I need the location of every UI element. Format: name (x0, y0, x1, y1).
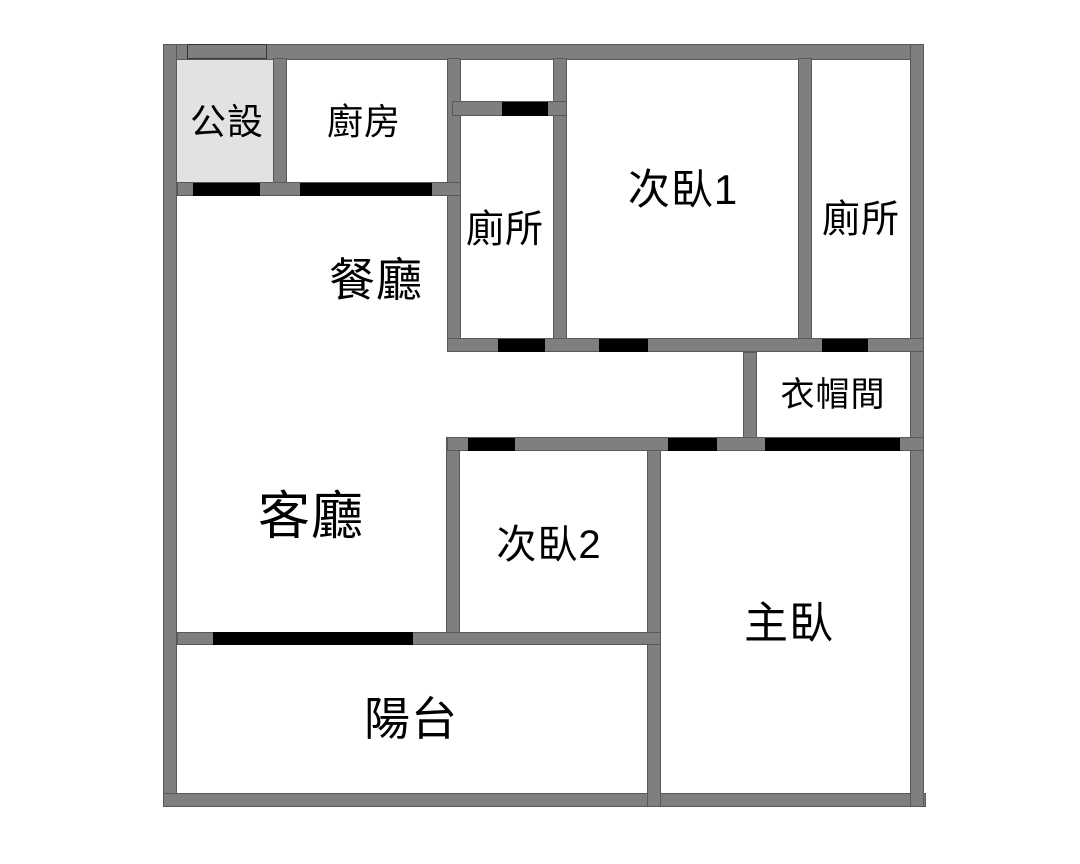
room-label-toilet-upper-left: 廁所 (466, 211, 544, 249)
wall-segment-wall-master-left (647, 437, 661, 807)
wall-segment-outer-left (163, 44, 177, 807)
room-label-living: 客廳 (258, 491, 364, 543)
wall-segment-partition-public-kitchen (273, 58, 287, 196)
floor-plan: 公設廚房廁所次臥1廁所餐廳衣帽間客廳次臥2主臥陽台 (0, 0, 1080, 864)
wall-segment-wall-bedroom1-right (798, 58, 812, 352)
door-bedroom1 (599, 339, 648, 352)
door-toilet-left (498, 339, 545, 352)
wall-segment-outer-right (910, 44, 924, 807)
room-label-toilet-upper-right: 廁所 (822, 201, 900, 239)
door-toilet-left-top (502, 102, 548, 116)
room-label-closet: 衣帽間 (781, 378, 886, 412)
door-master (668, 438, 717, 451)
room-label-master: 主臥 (744, 602, 834, 646)
room-label-bedroom-1: 次臥1 (628, 169, 738, 211)
door-balcony (213, 632, 413, 645)
wall-segment-outer-bottom (163, 793, 926, 807)
door-kitchen (300, 183, 432, 196)
door-bedroom2 (468, 438, 515, 451)
room-label-public: 公設 (190, 104, 264, 140)
door-toilet-right (822, 339, 868, 352)
wall-segment-wall-bedroom2-left (446, 437, 460, 645)
door-public (193, 183, 260, 196)
door-closet (765, 438, 900, 451)
room-label-kitchen: 廚房 (327, 104, 401, 140)
room-label-dining: 餐廳 (329, 257, 423, 303)
room-label-bedroom-2: 次臥2 (496, 525, 601, 565)
top-wall-panel (187, 44, 267, 59)
room-label-balcony: 陽台 (364, 696, 458, 742)
